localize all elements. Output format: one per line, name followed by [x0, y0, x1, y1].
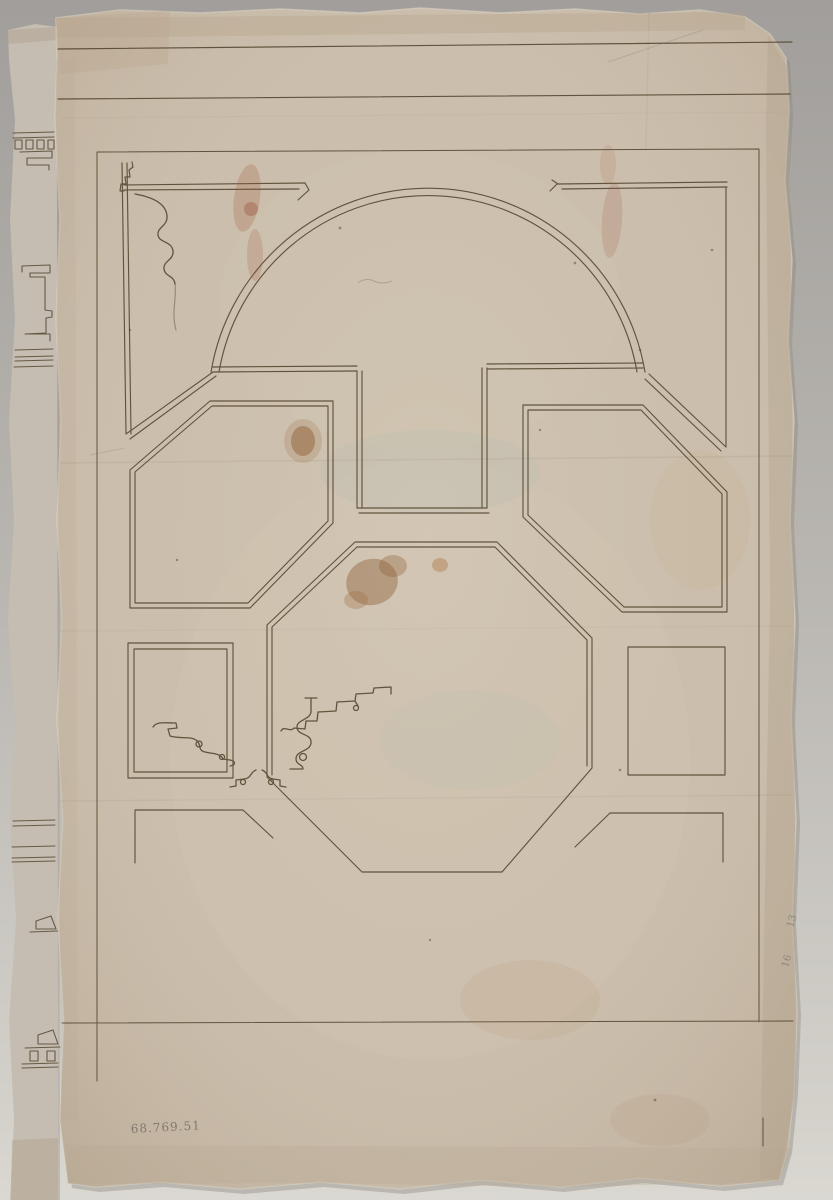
adjacent-sheet-bottom-stain — [11, 1138, 58, 1200]
adjacent-sheet-paper — [8, 24, 58, 1200]
stain-spot — [291, 426, 315, 456]
bottom-edge-band — [66, 1145, 793, 1187]
pale-stain — [610, 1094, 710, 1146]
stain-blob — [344, 591, 368, 609]
red-spot — [244, 202, 258, 216]
stain-dot — [432, 558, 448, 572]
adjacent-sheet-edge — [8, 24, 60, 1200]
pale-stain — [460, 960, 600, 1040]
photographed-drawing: 68.769.51 13 16 — [0, 0, 833, 1200]
paper-sheet-group — [55, 8, 801, 1194]
drawing-photo-canvas: 68.769.51 13 16 — [0, 0, 833, 1200]
red-streak — [247, 229, 263, 281]
stain-blob — [379, 555, 407, 577]
red-streak — [600, 145, 616, 185]
